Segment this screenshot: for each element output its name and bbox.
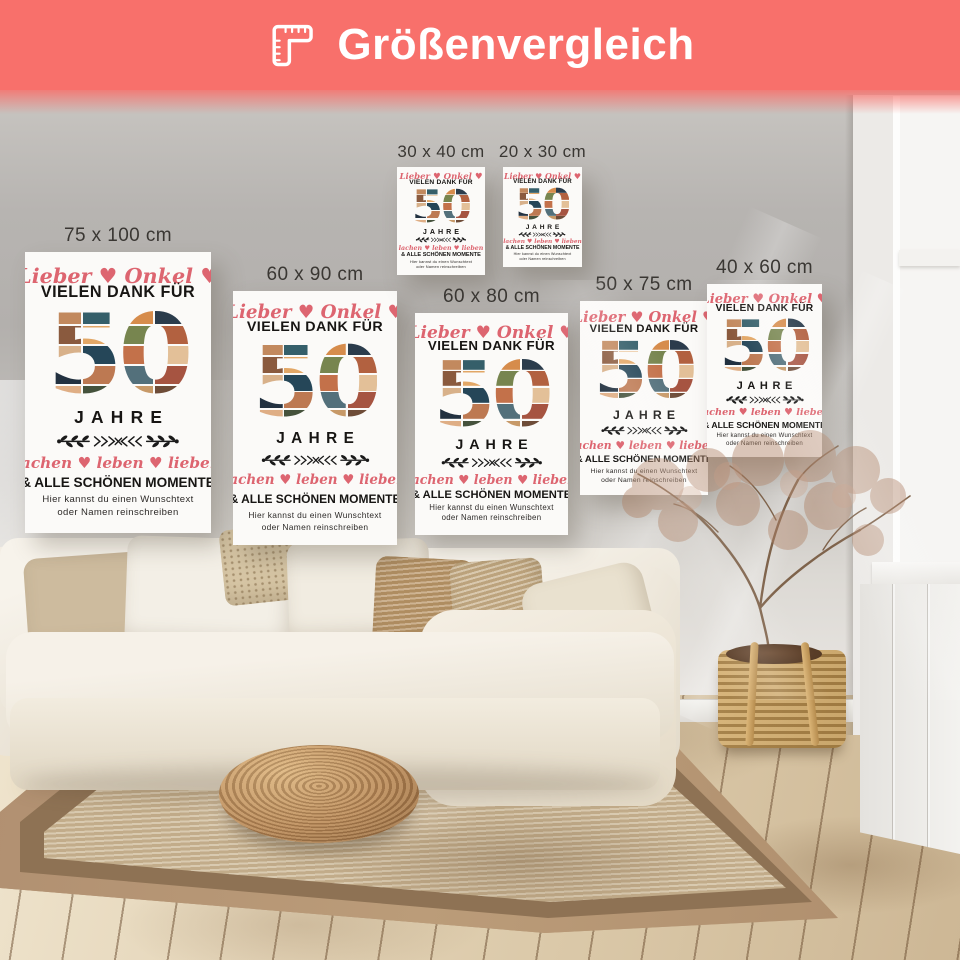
poster-note-line2: oder Namen reinschreiben bbox=[514, 257, 572, 262]
poster-card: Lieber ♥ Onkel ♥ VIELEN DANK FÜR 50 JAHR… bbox=[25, 252, 211, 533]
poster-years-line: JAHRE bbox=[732, 380, 797, 392]
sofa-armrest bbox=[0, 546, 112, 756]
poster-card: Lieber ♥ Onkel ♥ VIELEN DANK FÜR 50 JAHR… bbox=[503, 167, 582, 267]
baseboard bbox=[600, 699, 853, 722]
sofa-backrest bbox=[0, 538, 345, 713]
sunlight-overlay bbox=[540, 280, 960, 700]
poster-note: Hier kannst du einen Wunschtext oder Nam… bbox=[717, 432, 813, 448]
poster-script-motto: lachen ♥ leben ♥ lieben bbox=[580, 439, 708, 452]
sofa-chaise bbox=[420, 610, 676, 806]
poster-thanks-line: VIELEN DANK FÜR bbox=[409, 179, 473, 186]
poster-moments-line: & ALLE SCHÖNEN MOMENTE bbox=[415, 489, 568, 501]
photo-collage-number: 50 bbox=[720, 316, 810, 378]
poster-note-line1: Hier kannst du einen Wunschtext bbox=[591, 467, 698, 476]
rattan-pouf bbox=[219, 745, 419, 843]
poster-thanks-line: VIELEN DANK FÜR bbox=[590, 323, 699, 335]
wall-sunlight bbox=[0, 380, 340, 640]
pillow bbox=[218, 521, 317, 606]
rug-field bbox=[0, 700, 880, 950]
poster-note-line1: Hier kannst du einen Wunschtext bbox=[429, 503, 553, 514]
poster-size-label: 60 x 80 cm bbox=[443, 286, 540, 308]
laurel-divider-icon bbox=[55, 432, 181, 451]
wall bbox=[0, 0, 960, 960]
poster-script-motto: lachen ♥ leben ♥ lieben bbox=[399, 245, 484, 252]
laurel-divider-icon bbox=[725, 394, 805, 406]
sofa-seat-cushion bbox=[6, 632, 674, 740]
poster-note-line2: oder Namen reinschreiben bbox=[248, 522, 381, 533]
radiator-cabinet bbox=[860, 584, 960, 854]
poster-note-line2: oder Namen reinschreiben bbox=[591, 476, 698, 485]
poster-years-line: JAHRE bbox=[420, 228, 462, 236]
poster-card: Lieber ♥ Onkel ♥ VIELEN DANK FÜR 50 JAHR… bbox=[580, 301, 708, 495]
sofa bbox=[0, 520, 700, 800]
poster-moments-line: & ALLE SCHÖNEN MOMENTE bbox=[707, 420, 822, 430]
wicker-basket bbox=[718, 650, 846, 748]
poster-script-heading: Lieber ♥ Onkel ♥ bbox=[415, 323, 568, 343]
photo-collage-number: 50 bbox=[515, 186, 569, 223]
laurel-divider-icon bbox=[600, 424, 689, 437]
poster-years-line: JAHRE bbox=[270, 430, 360, 448]
sunlight-streak bbox=[665, 270, 910, 730]
poster: 75 x 100 cm Lieber ♥ Onkel ♥ VIELEN DANK… bbox=[25, 252, 211, 533]
dried-plant bbox=[598, 412, 918, 712]
basket-handle bbox=[745, 642, 758, 746]
sofa-shadow bbox=[20, 766, 660, 802]
poster: 60 x 90 cm Lieber ♥ Onkel ♥ VIELEN DANK … bbox=[233, 291, 397, 545]
poster-note: Hier kannst du einen Wunschtext oder Nam… bbox=[248, 510, 381, 533]
photo-collage-number: 50 bbox=[412, 187, 470, 227]
poster-size-label: 60 x 90 cm bbox=[267, 264, 364, 286]
poster-script-heading: Lieber ♥ Onkel ♥ bbox=[25, 264, 211, 288]
wood-floor bbox=[0, 695, 960, 960]
poster-note-line2: oder Namen reinschreiben bbox=[410, 264, 472, 269]
laurel-divider-icon bbox=[415, 236, 467, 244]
jute-rug bbox=[0, 700, 880, 950]
poster-moments-line: & ALLE SCHÖNEN MOMENTE bbox=[233, 492, 397, 506]
size-comparison-banner: Größenvergleich bbox=[0, 0, 960, 90]
window-wall bbox=[853, 95, 960, 735]
poster-thanks-line: VIELEN DANK FÜR bbox=[428, 338, 555, 353]
basket-handle bbox=[801, 642, 820, 746]
poster-script-motto: lachen ♥ leben ♥ lieben bbox=[415, 472, 568, 487]
sofa-backrest bbox=[335, 548, 680, 718]
pillow bbox=[286, 538, 431, 645]
poster-note: Hier kannst du einen Wunschtext oder Nam… bbox=[514, 252, 572, 262]
poster-note-line1: Hier kannst du einen Wunschtext bbox=[717, 432, 813, 440]
poster-note-line1: Hier kannst du einen Wunschtext bbox=[514, 252, 572, 257]
poster-script-heading: Lieber ♥ Onkel ♥ bbox=[580, 309, 708, 326]
poster-note-line2: oder Namen reinschreiben bbox=[717, 440, 813, 448]
poster-years-line: JAHRE bbox=[608, 408, 680, 422]
poster-note-line1: Hier kannst du einen Wunschtext bbox=[248, 510, 381, 521]
pillow bbox=[449, 557, 547, 653]
poster-script-heading: Lieber ♥ Onkel ♥ bbox=[233, 302, 397, 323]
poster-script-motto: lachen ♥ leben ♥ lieben bbox=[503, 239, 582, 245]
poster-size-label: 30 x 40 cm bbox=[397, 142, 484, 162]
poster-size-label: 50 x 75 cm bbox=[596, 274, 693, 296]
photo-collage-number: 50 bbox=[47, 306, 189, 404]
poster-script-motto: lachen ♥ leben ♥ lieben bbox=[707, 407, 822, 418]
product-size-comparison-image: 75 x 100 cm Lieber ♥ Onkel ♥ VIELEN DANK… bbox=[0, 0, 960, 960]
laurel-divider-icon bbox=[260, 452, 371, 469]
poster-note: Hier kannst du einen Wunschtext oder Nam… bbox=[410, 259, 472, 270]
photo-collage-number: 50 bbox=[594, 337, 694, 406]
poster-note-line2: oder Namen reinschreiben bbox=[429, 513, 553, 524]
poster-note: Hier kannst du einen Wunschtext oder Nam… bbox=[42, 494, 193, 520]
poster-size-label: 40 x 60 cm bbox=[716, 257, 813, 279]
poster-note: Hier kannst du einen Wunschtext oder Nam… bbox=[429, 503, 553, 524]
poster-note: Hier kannst du einen Wunschtext oder Nam… bbox=[591, 467, 698, 485]
poster-thanks-line: VIELEN DANK FÜR bbox=[41, 283, 195, 302]
poster-script-heading: Lieber ♥ Onkel ♥ bbox=[707, 292, 822, 307]
poster-years-line: JAHRE bbox=[67, 407, 169, 428]
poster-moments-line: & ALLE SCHÖNEN MOMENTE bbox=[401, 252, 481, 258]
poster: 40 x 60 cm Lieber ♥ Onkel ♥ VIELEN DANK … bbox=[707, 284, 822, 457]
sunlight-streak bbox=[538, 206, 823, 714]
poster-note-line1: Hier kannst du einen Wunschtext bbox=[410, 259, 472, 264]
poster-note-line1: Hier kannst du einen Wunschtext bbox=[42, 494, 193, 507]
poster-card: Lieber ♥ Onkel ♥ VIELEN DANK FÜR 50 JAHR… bbox=[397, 167, 485, 275]
pillow bbox=[518, 558, 662, 683]
poster-years-line: JAHRE bbox=[523, 224, 562, 231]
poster: 20 x 30 cm Lieber ♥ Onkel ♥ VIELEN DANK … bbox=[503, 167, 582, 267]
sofa-armrest bbox=[588, 566, 680, 776]
poster: 50 x 75 cm Lieber ♥ Onkel ♥ VIELEN DANK … bbox=[580, 301, 708, 495]
poster-moments-line: & ALLE SCHÖNEN MOMENTE bbox=[580, 454, 708, 465]
window-crossbar bbox=[899, 250, 960, 266]
poster-card: Lieber ♥ Onkel ♥ VIELEN DANK FÜR 50 JAHR… bbox=[415, 313, 568, 535]
banner-title: Größenvergleich bbox=[337, 20, 694, 70]
wall-corner bbox=[845, 95, 859, 735]
rug-border bbox=[0, 700, 880, 950]
laurel-divider-icon bbox=[518, 231, 566, 238]
poster: 60 x 80 cm Lieber ♥ Onkel ♥ VIELEN DANK … bbox=[415, 313, 568, 535]
poster-moments-line: & ALLE SCHÖNEN MOMENTE bbox=[25, 475, 211, 490]
poster-moments-line: & ALLE SCHÖNEN MOMENTE bbox=[506, 245, 580, 251]
photo-collage-number: 50 bbox=[433, 355, 550, 436]
poster-years-line: JAHRE bbox=[449, 437, 533, 453]
poster-note-line2: oder Namen reinschreiben bbox=[42, 507, 193, 520]
window-sill bbox=[872, 562, 960, 584]
poster-thanks-line: VIELEN DANK FÜR bbox=[247, 319, 383, 335]
sofa-base bbox=[10, 698, 660, 790]
poster-size-label: 20 x 30 cm bbox=[499, 142, 586, 162]
poster-script-heading: Lieber ♥ Onkel ♥ bbox=[504, 172, 581, 181]
ruler-icon bbox=[265, 19, 317, 71]
poster-thanks-line: VIELEN DANK FÜR bbox=[513, 178, 572, 185]
poster: 30 x 40 cm Lieber ♥ Onkel ♥ VIELEN DANK … bbox=[397, 167, 485, 275]
poster-script-motto: lachen ♥ leben ♥ lieben bbox=[233, 472, 397, 488]
window bbox=[893, 96, 960, 578]
poster-card: Lieber ♥ Onkel ♥ VIELEN DANK FÜR 50 JAHR… bbox=[233, 291, 397, 545]
poster-thanks-line: VIELEN DANK FÜR bbox=[715, 303, 813, 314]
poster-card: Lieber ♥ Onkel ♥ VIELEN DANK FÜR 50 JAHR… bbox=[707, 284, 822, 457]
laurel-divider-icon bbox=[440, 455, 544, 470]
pillow bbox=[124, 535, 296, 651]
pillow bbox=[372, 555, 475, 652]
poster-script-motto: lachen ♥ leben ♥ lieben bbox=[25, 454, 211, 472]
photo-collage-number: 50 bbox=[253, 339, 378, 425]
poster-size-label: 75 x 100 cm bbox=[64, 225, 172, 247]
poster-script-heading: Lieber ♥ Onkel ♥ bbox=[400, 172, 483, 182]
pillow bbox=[23, 549, 181, 657]
